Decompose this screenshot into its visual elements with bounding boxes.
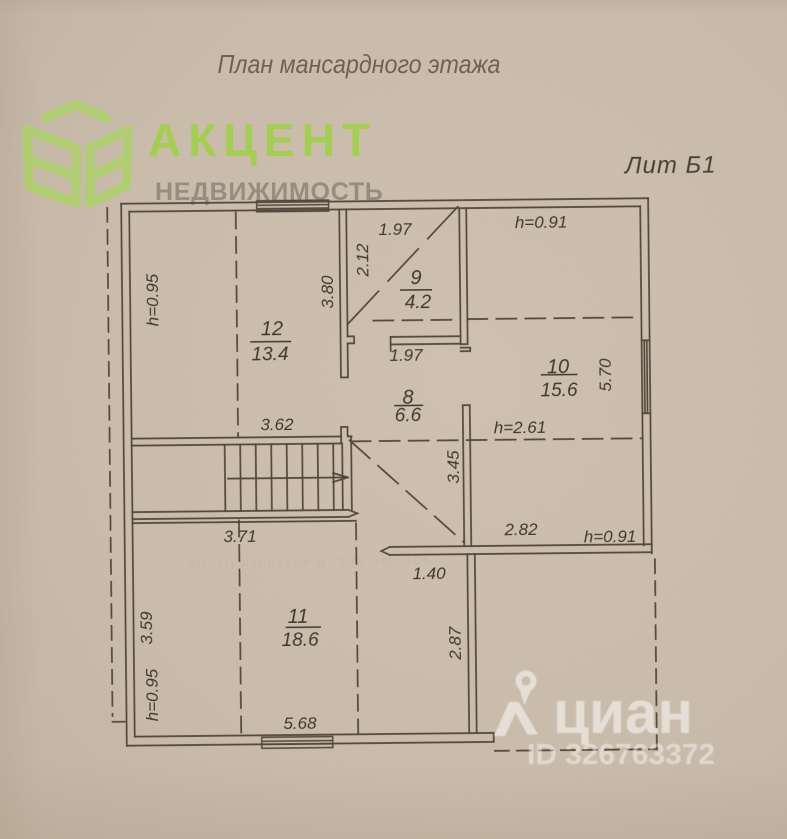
- svg-text:h=0.95: h=0.95: [143, 668, 163, 721]
- svg-text:2.82: 2.82: [503, 520, 538, 539]
- svg-text:2.87: 2.87: [446, 626, 465, 661]
- svg-text:1.97: 1.97: [389, 346, 423, 365]
- svg-text:ул. Пушкинская д. 268 оф. 308: ул. Пушкинская д. 268 оф. 308: [189, 553, 432, 571]
- svg-text:3.62: 3.62: [260, 415, 294, 434]
- svg-text:h=2.61: h=2.61: [494, 418, 547, 438]
- svg-text:4.2: 4.2: [405, 292, 432, 313]
- svg-text:3.45: 3.45: [444, 450, 463, 484]
- svg-text:h=0.91: h=0.91: [584, 527, 637, 547]
- svg-text:6.6: 6.6: [395, 405, 422, 426]
- svg-text:АКЦЕНТ: АКЦЕНТ: [148, 114, 377, 166]
- svg-text:3.71: 3.71: [223, 527, 256, 546]
- svg-text:h=0.95: h=0.95: [143, 273, 163, 326]
- svg-text:9: 9: [410, 267, 421, 289]
- svg-text:13.4: 13.4: [251, 344, 288, 365]
- svg-text:5.70: 5.70: [596, 358, 615, 392]
- svg-text:h=0.91: h=0.91: [515, 213, 568, 233]
- svg-text:5.68: 5.68: [283, 714, 317, 733]
- svg-text:12: 12: [261, 318, 283, 340]
- svg-text:1.97: 1.97: [378, 220, 412, 239]
- svg-text:План мансардного этажа: План мансардного этажа: [218, 49, 501, 79]
- svg-text:3.59: 3.59: [137, 611, 156, 645]
- svg-text:циан: циан: [553, 679, 693, 746]
- svg-text:2.12: 2.12: [353, 243, 372, 278]
- svg-text:15.6: 15.6: [540, 380, 578, 401]
- svg-text:Лит Б1: Лит Б1: [623, 152, 717, 180]
- svg-text:ID 326763372: ID 326763372: [527, 739, 715, 771]
- svg-text:3.80: 3.80: [318, 275, 337, 309]
- svg-text:11: 11: [287, 606, 308, 628]
- svg-text:18.6: 18.6: [282, 630, 320, 651]
